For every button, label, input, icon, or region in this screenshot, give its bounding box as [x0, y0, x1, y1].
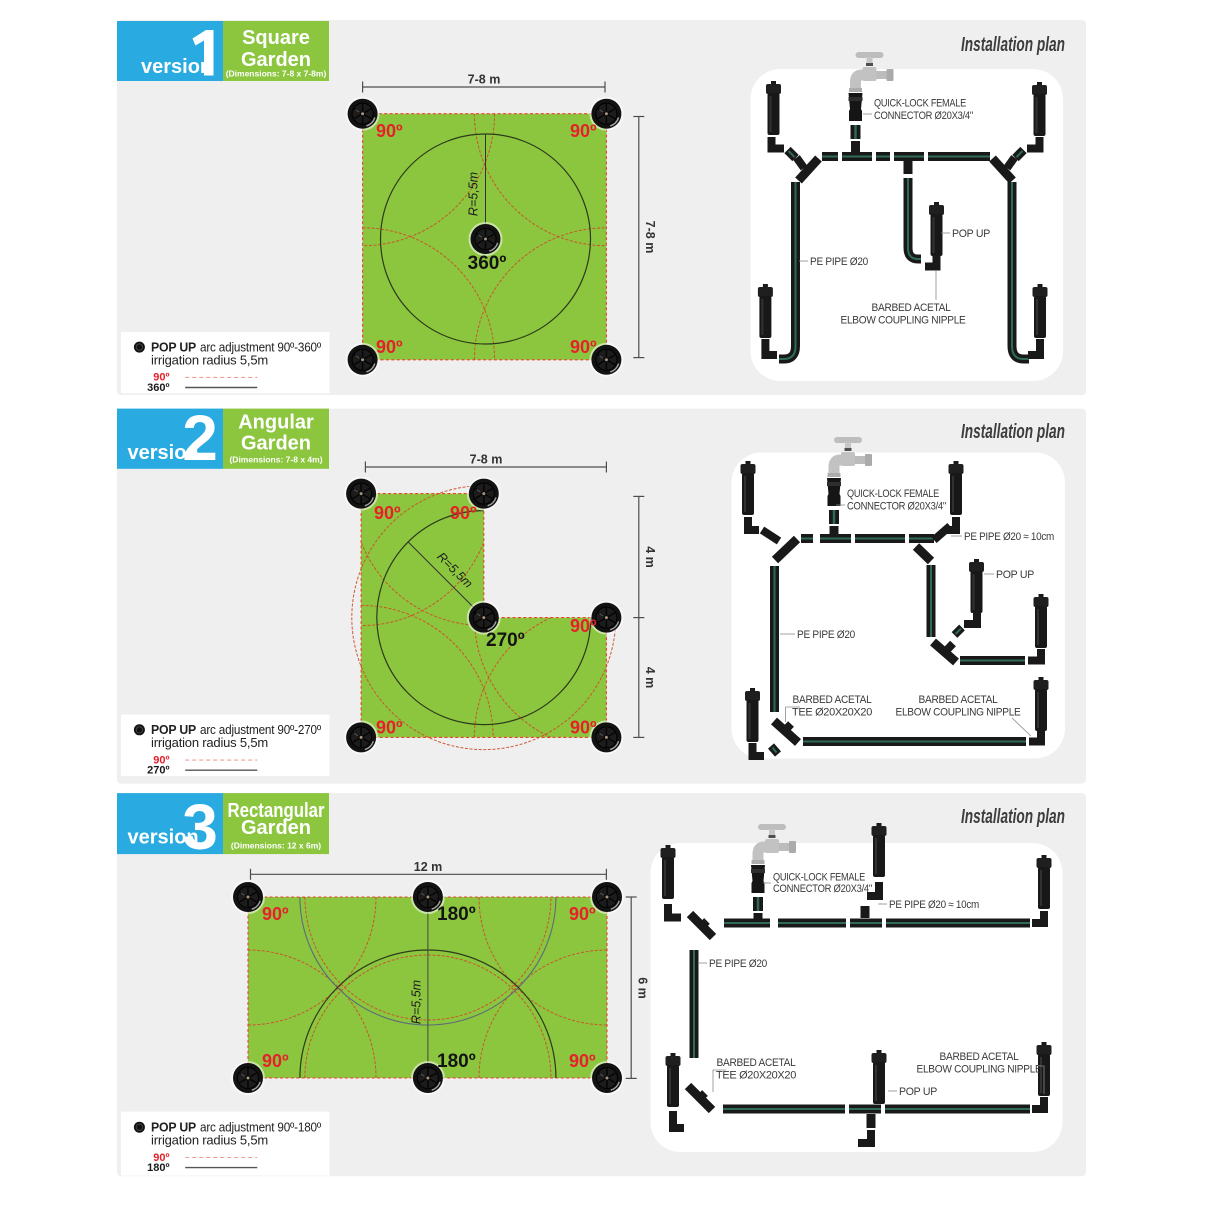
svg-text:90º: 90º — [376, 718, 403, 738]
svg-text:90º: 90º — [262, 904, 289, 924]
svg-text:POP UP: POP UP — [996, 569, 1034, 581]
svg-text:90º: 90º — [570, 616, 597, 636]
svg-text:irrigation radius 5,5m: irrigation radius 5,5m — [151, 353, 268, 368]
svg-text:CONNECTOR Ø20X3/4": CONNECTOR Ø20X3/4" — [773, 883, 872, 895]
svg-text:90º: 90º — [262, 1051, 289, 1071]
svg-text:Installation plan: Installation plan — [961, 34, 1065, 56]
svg-text:TEE Ø20X20X20: TEE Ø20X20X20 — [716, 1070, 796, 1082]
svg-text:6 m: 6 m — [636, 977, 650, 999]
svg-text:Installation plan: Installation plan — [961, 806, 1065, 828]
svg-text:BARBED ACETAL: BARBED ACETAL — [872, 302, 951, 314]
svg-text:(Dimensions: 7-8 x 7-8m): (Dimensions: 7-8 x 7-8m) — [226, 69, 327, 79]
svg-text:7-8 m: 7-8 m — [470, 453, 503, 467]
svg-text:PE PIPE Ø20: PE PIPE Ø20 — [797, 629, 855, 641]
svg-text:90º: 90º — [376, 337, 403, 357]
svg-text:Installation plan: Installation plan — [961, 421, 1065, 443]
svg-text:ELBOW COUPLING NIPPLE: ELBOW COUPLING NIPPLE — [896, 707, 1021, 719]
svg-text:90º: 90º — [374, 503, 401, 523]
svg-text:270º: 270º — [147, 765, 169, 777]
svg-text:PE PIPE Ø20 ≈ 10cm: PE PIPE Ø20 ≈ 10cm — [964, 531, 1054, 543]
svg-text:PE PIPE Ø20: PE PIPE Ø20 — [810, 256, 868, 268]
svg-text:PE PIPE Ø20 ≈ 10cm: PE PIPE Ø20 ≈ 10cm — [889, 899, 979, 911]
svg-text:90º: 90º — [450, 503, 477, 523]
svg-text:BARBED ACETAL: BARBED ACETAL — [940, 1051, 1019, 1063]
svg-text:3: 3 — [182, 791, 218, 863]
svg-text:90º: 90º — [376, 121, 403, 141]
svg-text:ELBOW COUPLING NIPPLE: ELBOW COUPLING NIPPLE — [841, 315, 966, 327]
svg-text:(Dimensions: 7-8 x 4m): (Dimensions: 7-8 x 4m) — [229, 455, 322, 465]
svg-text:Square: Square — [242, 27, 310, 49]
svg-text:360º: 360º — [147, 382, 169, 394]
svg-text:Garden: Garden — [241, 433, 311, 455]
svg-text:12 m: 12 m — [414, 860, 443, 874]
svg-text:Angular: Angular — [238, 412, 314, 434]
svg-text:R=5,5m: R=5,5m — [410, 980, 424, 1024]
svg-text:180º: 180º — [147, 1162, 169, 1174]
svg-text:90º: 90º — [570, 121, 597, 141]
svg-text:4 m: 4 m — [643, 546, 657, 568]
svg-text:360º: 360º — [468, 253, 507, 274]
svg-text:QUICK-LOCK FEMALE: QUICK-LOCK FEMALE — [773, 872, 865, 884]
svg-text:QUICK-LOCK FEMALE: QUICK-LOCK FEMALE — [874, 98, 966, 110]
svg-text:90º: 90º — [570, 718, 597, 738]
svg-text:7-8 m: 7-8 m — [468, 73, 501, 87]
svg-text:7-8 m: 7-8 m — [643, 221, 657, 254]
svg-text:2: 2 — [182, 402, 218, 474]
svg-text:PE PIPE Ø20: PE PIPE Ø20 — [709, 958, 767, 970]
svg-text:90º: 90º — [569, 904, 596, 924]
svg-text:POP UP: POP UP — [952, 228, 990, 240]
svg-text:POP UP: POP UP — [899, 1086, 937, 1098]
svg-text:ELBOW COUPLING NIPPLE: ELBOW COUPLING NIPPLE — [917, 1064, 1042, 1076]
svg-text:CONNECTOR Ø20X3/4": CONNECTOR Ø20X3/4" — [847, 501, 946, 513]
svg-text:BARBED ACETAL: BARBED ACETAL — [793, 694, 872, 706]
svg-text:180º: 180º — [437, 1051, 476, 1072]
svg-text:BARBED ACETAL: BARBED ACETAL — [717, 1057, 796, 1069]
svg-text:270º: 270º — [486, 630, 525, 651]
svg-text:BARBED ACETAL: BARBED ACETAL — [919, 694, 998, 706]
svg-text:4 m: 4 m — [643, 667, 657, 689]
svg-text:version: version — [141, 56, 212, 78]
svg-text:180º: 180º — [437, 904, 476, 925]
svg-text:R=5,5m: R=5,5m — [467, 172, 481, 216]
svg-text:Garden: Garden — [241, 817, 311, 839]
svg-text:CONNECTOR Ø20X3/4": CONNECTOR Ø20X3/4" — [874, 110, 973, 122]
svg-text:90º: 90º — [570, 337, 597, 357]
svg-text:QUICK-LOCK FEMALE: QUICK-LOCK FEMALE — [847, 488, 939, 500]
svg-text:irrigation radius 5,5m: irrigation radius 5,5m — [151, 1133, 268, 1148]
svg-text:(Dimensions: 12 x 6m): (Dimensions: 12 x 6m) — [231, 841, 321, 851]
svg-text:TEE Ø20X20X20: TEE Ø20X20X20 — [792, 707, 872, 719]
svg-text:90º: 90º — [569, 1051, 596, 1071]
svg-text:irrigation radius 5,5m: irrigation radius 5,5m — [151, 735, 268, 750]
